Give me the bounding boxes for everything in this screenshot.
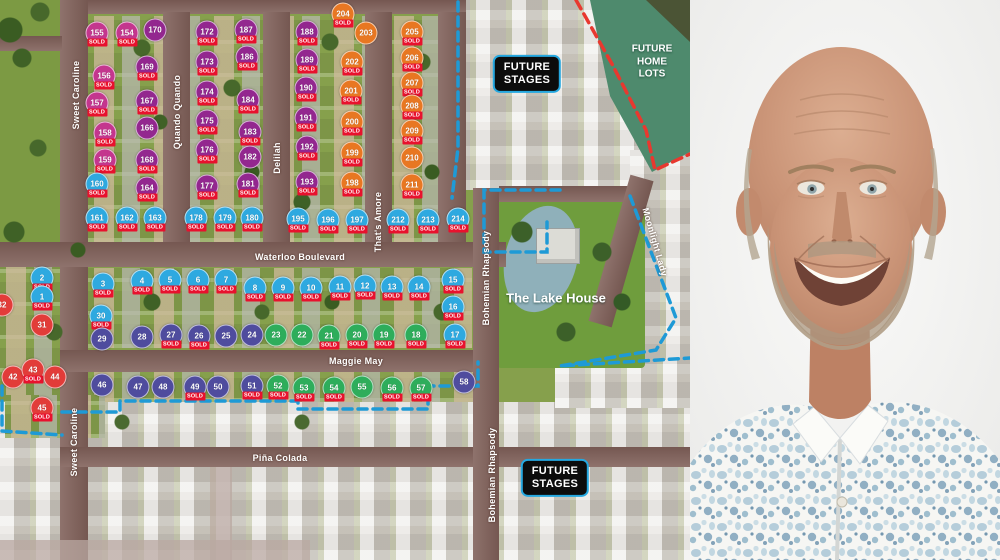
lot-marker: 208 SOLD [401,95,424,118]
lot-number: 45 [38,404,47,412]
lot-marker: 198 SOLD [341,172,364,195]
lot-number: 160 [90,180,103,188]
lot-marker: 19 SOLD [373,324,396,347]
lot-marker: 1 SOLD [31,286,54,309]
sold-tag: SOLD [137,166,157,174]
lot-number: 31 [38,321,47,329]
lot-number: 182 [243,153,256,161]
lot-marker: 28 [131,326,154,349]
lot-number: 32 [0,301,6,309]
sold-tag: SOLD [197,68,217,76]
lot-marker: 162 SOLD [116,207,139,230]
lot-marker: 46 [91,374,114,397]
lot-marker: 45 SOLD [31,397,54,420]
sold-tag: SOLD [333,20,353,28]
lot-number: 169 [140,63,153,71]
lot-marker: 14 SOLD [408,276,431,299]
sold-tag: SOLD [448,225,468,233]
lot-marker: 188 SOLD [296,21,319,44]
sold-tag: SOLD [382,293,402,301]
lot-marker: 200 SOLD [341,111,364,134]
lot-marker: 20 SOLD [346,324,369,347]
lot-marker: 205 SOLD [401,21,424,44]
sold-tag: SOLD [445,341,465,349]
lot-marker: 176 SOLD [196,139,219,162]
lot-marker: 15 SOLD [442,269,465,292]
sold-tag: SOLD [268,392,288,400]
lot-marker: 159 SOLD [94,149,117,172]
lot-marker: 51 SOLD [241,375,264,398]
sold-tag: SOLD [342,189,362,197]
lake-house-label: The Lake House [506,291,606,306]
lot-marker: 167 SOLD [136,90,159,113]
street-label: Piña Colada [253,453,308,463]
lot-number: 8 [253,284,257,292]
lot-marker: 212 SOLD [387,209,410,232]
lot-number: 200 [345,118,358,126]
lot-number: 188 [300,28,313,36]
sold-tag: SOLD [161,341,181,349]
lot-number: 17 [451,331,460,339]
lot-number: 162 [120,214,133,222]
lot-number: 51 [248,382,257,390]
sold-tag: SOLD [443,286,463,294]
lot-number: 52 [274,382,283,390]
lot-marker: 214 SOLD [447,208,470,231]
future-stages-badge: FUTURE STAGES [493,55,561,93]
lot-marker: 21 SOLD [318,325,341,348]
lot-marker: 55 [351,376,374,399]
lot-number: 180 [245,214,258,222]
sold-tag: SOLD [95,139,115,147]
lot-number: 7 [224,276,228,284]
lot-marker: 29 [91,328,114,351]
lot-number: 55 [358,383,367,391]
lot-marker: 13 SOLD [381,276,404,299]
sold-tag: SOLD [402,191,422,199]
lot-number: 46 [98,381,107,389]
lot-number: 208 [405,102,418,110]
future-stages-badge: FUTURE STAGES [521,459,589,497]
sold-tag: SOLD [87,109,107,117]
lot-marker: 170 [144,19,167,42]
masterplan-map: Sweet Caroline Quando Quando Delilah Tha… [0,0,690,560]
lot-marker: 4 SOLD [131,270,154,293]
sold-tag: SOLD [117,224,137,232]
lot-marker: 10 SOLD [300,277,323,300]
sold-tag: SOLD [297,66,317,74]
lot-number: 57 [417,384,426,392]
lot-number: 193 [300,178,313,186]
lot-marker: 48 [152,376,175,399]
lot-marker: 201 SOLD [340,80,363,103]
lot-marker: 166 [136,117,159,140]
sold-tag: SOLD [294,394,314,402]
lot-number: 49 [191,383,200,391]
lot-number: 15 [449,276,458,284]
lot-marker: 197 SOLD [346,209,369,232]
lot-number: 24 [248,331,257,339]
lot-number: 204 [336,10,349,18]
sold-tag: SOLD [188,286,208,294]
lot-marker: 49 SOLD [184,376,207,399]
lot-marker: 53 SOLD [293,377,316,400]
lot-marker: 175 SOLD [196,110,219,133]
lot-marker: 12 SOLD [354,275,377,298]
sold-tag: SOLD [342,128,362,136]
lot-marker: 174 SOLD [196,81,219,104]
lot-marker: 54 SOLD [323,377,346,400]
lot-marker: 184 SOLD [237,89,260,112]
lot-number: 174 [200,88,213,96]
sold-tag: SOLD [132,287,152,295]
lot-number: 175 [200,117,213,125]
lot-marker: 157 SOLD [86,92,109,115]
lot-marker: 3 SOLD [92,273,115,296]
lot-marker: 186 SOLD [236,46,259,69]
lot-number: 26 [195,332,204,340]
lot-number: 179 [218,214,231,222]
sold-tag: SOLD [238,106,258,114]
sold-tag: SOLD [197,38,217,46]
lot-number: 202 [345,58,358,66]
sold-tag: SOLD [402,38,422,46]
lot-number: 181 [241,180,254,188]
lot-marker: 23 [265,324,288,347]
lot-number: 190 [299,84,312,92]
sold-tag: SOLD [347,341,367,349]
lot-number: 163 [148,214,161,222]
lot-marker: 182 [239,146,262,169]
sold-tag: SOLD [236,36,256,44]
street-label: Maggie May [329,356,383,366]
sold-tag: SOLD [237,63,257,71]
lot-number: 176 [200,146,213,154]
lot-marker: 18 SOLD [405,324,428,347]
lot-number: 189 [300,56,313,64]
lot-marker: 199 SOLD [341,142,364,165]
sold-tag: SOLD [355,292,375,300]
sold-tag: SOLD [402,64,422,72]
sold-tag: SOLD [318,226,338,234]
lot-number: 199 [345,149,358,157]
sold-tag: SOLD [197,192,217,200]
lot-number: 214 [451,215,464,223]
lot-marker: 160 SOLD [86,173,109,196]
sold-tag: SOLD [288,225,308,233]
lot-number: 192 [300,143,313,151]
lot-number: 44 [51,373,60,381]
lot-number: 191 [299,114,312,122]
lot-number: 154 [120,29,133,37]
sold-tag: SOLD [418,226,438,234]
lot-marker: 173 SOLD [196,51,219,74]
sold-tag: SOLD [145,224,165,232]
street-label: Delilah [272,142,282,174]
lot-marker: 179 SOLD [214,207,237,230]
lot-marker: 164 SOLD [136,177,159,200]
lot-number: 173 [200,58,213,66]
street-label: Bohemian Rhapsody [487,428,497,523]
lot-number: 23 [272,331,281,339]
stage-boundary-moonlight [560,196,690,366]
lot-number: 6 [196,276,200,284]
lot-number: 13 [388,283,397,291]
lot-marker: 190 SOLD [295,77,318,100]
lot-number: 210 [405,154,418,162]
lot-marker: 203 [355,22,378,45]
lot-marker: 161 SOLD [86,207,109,230]
sold-tag: SOLD [297,188,317,196]
lot-number: 166 [140,124,153,132]
lot-number: 184 [241,96,254,104]
sold-tag: SOLD [245,294,265,302]
lot-number: 20 [353,331,362,339]
lot-number: 209 [405,127,418,135]
lot-marker: 189 SOLD [296,49,319,72]
lot-marker: 7 SOLD [215,269,238,292]
lot-marker: 25 [215,325,238,348]
stage-boundary-lake-notch [484,190,560,252]
lot-marker: 202 SOLD [341,51,364,74]
sold-tag: SOLD [342,159,362,167]
lot-number: 22 [298,331,307,339]
lot-marker: 206 SOLD [401,47,424,70]
sold-tag: SOLD [374,341,394,349]
presenter-portrait [690,0,1000,560]
lot-marker: 52 SOLD [267,375,290,398]
lot-marker: 180 SOLD [241,207,264,230]
lot-number: 12 [361,282,370,290]
lot-number: 201 [344,87,357,95]
lot-number: 213 [421,216,434,224]
sold-tag: SOLD [443,313,463,321]
sold-tag: SOLD [137,107,157,115]
lot-marker: 24 [241,324,264,347]
sold-tag: SOLD [406,341,426,349]
lot-marker: 169 SOLD [136,56,159,79]
lot-marker: 17 SOLD [444,324,467,347]
lot-marker: 154 SOLD [116,22,139,45]
lot-number: 54 [330,384,339,392]
lot-marker: 56 SOLD [381,377,404,400]
lot-number: 155 [90,29,103,37]
lot-number: 4 [140,277,144,285]
sold-tag: SOLD [319,342,339,350]
sold-tag: SOLD [197,127,217,135]
lot-marker: 22 [291,324,314,347]
lot-marker: 181 SOLD [237,173,260,196]
sold-tag: SOLD [242,392,262,400]
lot-number: 178 [189,214,202,222]
sold-tag: SOLD [23,376,43,384]
lot-marker: 6 SOLD [187,269,210,292]
lot-marker: 183 SOLD [239,121,262,144]
sold-tag: SOLD [301,294,321,302]
lot-marker: 26 SOLD [188,325,211,348]
street-label: That's Amore [373,192,383,252]
sold-tag: SOLD [297,38,317,46]
lot-marker: 8 SOLD [244,277,267,300]
sold-tag: SOLD [117,39,137,47]
lot-number: 9 [281,284,285,292]
lot-marker: 172 SOLD [196,21,219,44]
stage-boundary-east [452,2,458,198]
lot-number: 170 [148,26,161,34]
lot-number: 195 [291,215,304,223]
lot-marker: 211 SOLD [401,174,424,197]
sold-tag: SOLD [197,156,217,164]
sold-tag: SOLD [342,68,362,76]
sold-tag: SOLD [94,82,114,90]
sold-tag: SOLD [197,98,217,106]
lot-number: 56 [388,384,397,392]
sold-tag: SOLD [402,137,422,145]
lot-number: 30 [97,312,106,320]
sold-tag: SOLD [186,224,206,232]
lot-marker: 158 SOLD [94,122,117,145]
lot-marker: 57 SOLD [410,377,433,400]
sold-tag: SOLD [137,194,157,202]
lot-number: 161 [90,214,103,222]
lot-marker: 31 [31,314,54,337]
lot-number: 197 [350,216,363,224]
sold-tag: SOLD [296,94,316,102]
lot-marker: 50 [207,376,230,399]
lot-number: 187 [239,26,252,34]
sold-tag: SOLD [238,190,258,198]
street-label: Waterloo Boulevard [255,252,345,262]
lot-number: 159 [98,156,111,164]
lot-number: 11 [336,283,344,291]
lot-number: 48 [159,383,168,391]
lot-number: 186 [240,53,253,61]
lot-number: 43 [29,366,38,374]
lot-marker: 213 SOLD [417,209,440,232]
lot-marker: 191 SOLD [295,107,318,130]
lot-marker: 44 [44,366,67,389]
lot-number: 167 [140,97,153,105]
lot-number: 212 [391,216,404,224]
lot-number: 203 [359,29,372,37]
sold-tag: SOLD [137,73,157,81]
lot-number: 205 [405,28,418,36]
lot-number: 177 [200,182,213,190]
lot-marker: 11 SOLD [329,276,352,299]
sold-tag: SOLD [93,290,113,298]
sold-tag: SOLD [87,190,107,198]
lot-marker: 192 SOLD [296,136,319,159]
sold-tag: SOLD [388,226,408,234]
lot-number: 27 [167,331,176,339]
lot-number: 42 [9,373,18,381]
lot-number: 18 [412,331,421,339]
lot-marker: 195 SOLD [287,208,310,231]
lot-number: 50 [214,383,223,391]
sold-tag: SOLD [324,394,344,402]
lot-marker: 178 SOLD [185,207,208,230]
lot-marker: 177 SOLD [196,175,219,198]
street-label: Sweet Caroline [71,61,81,130]
future-home-lots-label: FUTURE HOME LOTS [632,43,673,81]
lot-number: 172 [200,28,213,36]
sold-tag: SOLD [242,224,262,232]
sold-tag: SOLD [347,226,367,234]
lot-marker: 27 SOLD [160,324,183,347]
street-label: Sweet Caroline [69,408,79,477]
sold-tag: SOLD [240,138,260,146]
lot-number: 21 [325,332,334,340]
lot-number: 19 [380,331,389,339]
lot-number: 25 [222,332,231,340]
lot-marker: 16 SOLD [442,296,465,319]
street-label: Quando Quando [172,75,182,149]
lot-marker: 204 SOLD [332,3,355,26]
lot-marker: 156 SOLD [93,65,116,88]
lot-number: 58 [460,378,469,386]
lot-number: 53 [300,384,309,392]
sold-tag: SOLD [402,112,422,120]
sold-tag: SOLD [160,286,180,294]
sold-tag: SOLD [87,224,107,232]
sold-tag: SOLD [297,153,317,161]
lot-marker: 5 SOLD [159,269,182,292]
lot-marker: 47 [127,376,150,399]
sold-tag: SOLD [216,286,236,294]
presenter-photo-panel [690,0,1000,560]
lot-number: 157 [90,99,103,107]
lot-number: 47 [134,383,143,391]
lot-marker: 210 [401,147,424,170]
lot-number: 168 [140,156,153,164]
street-label: Bohemian Rhapsody [481,231,491,326]
lot-marker: 168 SOLD [136,149,159,172]
lot-number: 1 [40,293,44,301]
lot-number: 2 [40,274,44,282]
sold-tag: SOLD [341,97,361,105]
lot-number: 198 [345,179,358,187]
lot-number: 156 [97,72,110,80]
lot-marker: 43 SOLD [22,359,45,382]
lot-marker: 155 SOLD [86,22,109,45]
sold-tag: SOLD [411,394,431,402]
lot-number: 211 [406,181,419,189]
lot-number: 158 [98,129,111,137]
sold-tag: SOLD [87,39,107,47]
sold-tag: SOLD [32,303,52,311]
lot-number: 14 [415,283,424,291]
lot-number: 5 [168,276,172,284]
sold-tag: SOLD [330,293,350,301]
sold-tag: SOLD [185,393,205,401]
lot-marker: 196 SOLD [317,209,340,232]
lot-number: 16 [449,303,458,311]
lot-number: 196 [321,216,334,224]
lot-number: 207 [405,79,418,87]
lot-marker: 163 SOLD [144,207,167,230]
sold-tag: SOLD [296,124,316,132]
lot-number: 164 [140,184,153,192]
sold-tag: SOLD [215,224,235,232]
lot-number: 10 [307,284,316,292]
sold-tag: SOLD [273,294,293,302]
sold-tag: SOLD [189,342,209,350]
lot-number: 183 [243,128,256,136]
lot-number: 3 [101,280,105,288]
sold-tag: SOLD [409,293,429,301]
lot-marker: 9 SOLD [272,277,295,300]
lot-marker: 193 SOLD [296,171,319,194]
